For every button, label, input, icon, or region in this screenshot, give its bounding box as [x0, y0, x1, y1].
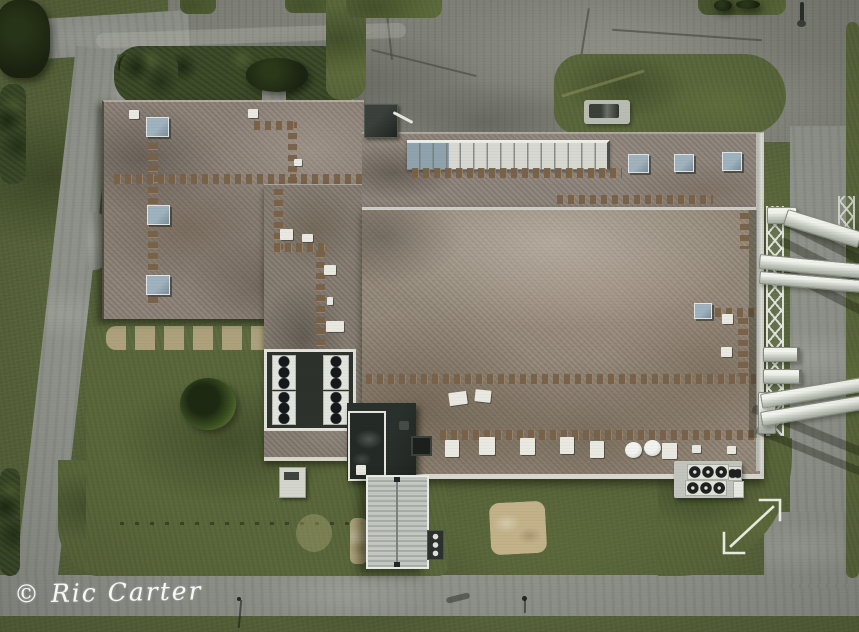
ground-hvac-fan-pair [728, 466, 742, 481]
roof-plant-box [479, 437, 495, 455]
roof-debris-white [326, 321, 344, 332]
roof-vent-white [721, 347, 732, 357]
skylight-dividers [407, 143, 607, 169]
bush [714, 0, 732, 11]
equipment-debris [589, 104, 619, 118]
small-dark-unit [427, 530, 444, 560]
roof-plant-box [520, 438, 535, 455]
roof-walkway-long [366, 374, 756, 384]
roof-vent-skylight [146, 117, 169, 137]
roof-debris-white [448, 391, 468, 406]
roof-plant-box [445, 440, 459, 457]
expand-diagonal-arrow-icon[interactable] [712, 488, 792, 566]
ridge-line [396, 477, 398, 567]
bush [736, 0, 760, 9]
grass-strip-top-center [346, 0, 442, 18]
building-dark-tower [347, 403, 416, 480]
pipe-stub [763, 369, 802, 384]
roof-vent-white [692, 445, 701, 453]
roof-round-tank [625, 442, 642, 458]
roof-debris-white [302, 234, 313, 242]
roof-plant-box [662, 443, 677, 459]
roof-skylight-blue [628, 154, 649, 173]
arrow-diagonal-line [731, 507, 773, 546]
watermark: © Ric Carter [14, 576, 203, 608]
roof-vent-white [129, 110, 139, 119]
hvac-unit [323, 391, 349, 425]
dark-roof-panel-framed [348, 411, 386, 481]
roof-plant-box [590, 441, 604, 458]
bush [246, 58, 308, 92]
hvac-unit [272, 355, 296, 390]
dark-roof-white-hatch [356, 465, 366, 475]
roof-walkway [274, 189, 283, 251]
roof-walkway [740, 213, 749, 249]
pale-grass-patch [296, 514, 332, 552]
dark-roof-vent [399, 421, 409, 430]
roof-round-tank [644, 440, 661, 456]
roof-vent-skylight [146, 275, 170, 295]
roof-walkway [557, 195, 713, 204]
roof-skylight-blue [722, 152, 742, 171]
black-vent-box [411, 436, 432, 456]
shrub-left-edge [0, 84, 26, 184]
roof-walkway [412, 168, 622, 178]
roof-debris-white [280, 229, 293, 240]
roof-walkway [114, 174, 364, 184]
roof-debris-white [324, 265, 336, 275]
hvac-unit [323, 355, 349, 390]
stepping-stone-path [106, 326, 276, 350]
roof-vent-skylight [147, 205, 170, 225]
roof-vent-white [727, 446, 736, 454]
shrub-by-building [120, 48, 178, 102]
building-north-strip-roof [362, 132, 764, 211]
roof-skylight-blue [674, 154, 694, 172]
roof-debris-white [474, 389, 491, 403]
roof-vent-white [722, 314, 733, 324]
roof-vent-white [248, 109, 258, 118]
grass-strip-top [180, 0, 216, 14]
bush-top-left-corner [0, 0, 50, 78]
equipment-pad [584, 100, 630, 124]
pipe-stub [763, 347, 800, 362]
round-bush-mound [180, 378, 236, 430]
roof-walkway [288, 122, 297, 184]
ridge-cap [394, 562, 400, 567]
roof-plant-box [560, 437, 574, 454]
lamp-post-head [797, 20, 806, 27]
building-white-corrugated [366, 475, 429, 569]
roof-vent-white [294, 159, 302, 166]
roof-vent-skylight [694, 303, 712, 319]
sand-patch [489, 501, 548, 556]
roof-debris-white [327, 297, 333, 305]
ridge-cap [394, 477, 400, 482]
roof-walkway [254, 121, 297, 130]
roof-walkway [738, 318, 748, 376]
aerial-photo-scene: © Ric Carter [0, 0, 859, 632]
hvac-unit [272, 391, 296, 425]
ground-hvac-fan-row [687, 464, 729, 480]
skylight-strip [407, 140, 610, 170]
shed-door [284, 472, 299, 480]
dark-rooftop-structure [364, 104, 398, 138]
pole-shadow [524, 600, 526, 613]
small-shed [279, 467, 306, 498]
shrub-left-edge [0, 468, 20, 576]
rooftop-hvac-enclosure [264, 349, 356, 431]
sand-strip [350, 518, 367, 564]
